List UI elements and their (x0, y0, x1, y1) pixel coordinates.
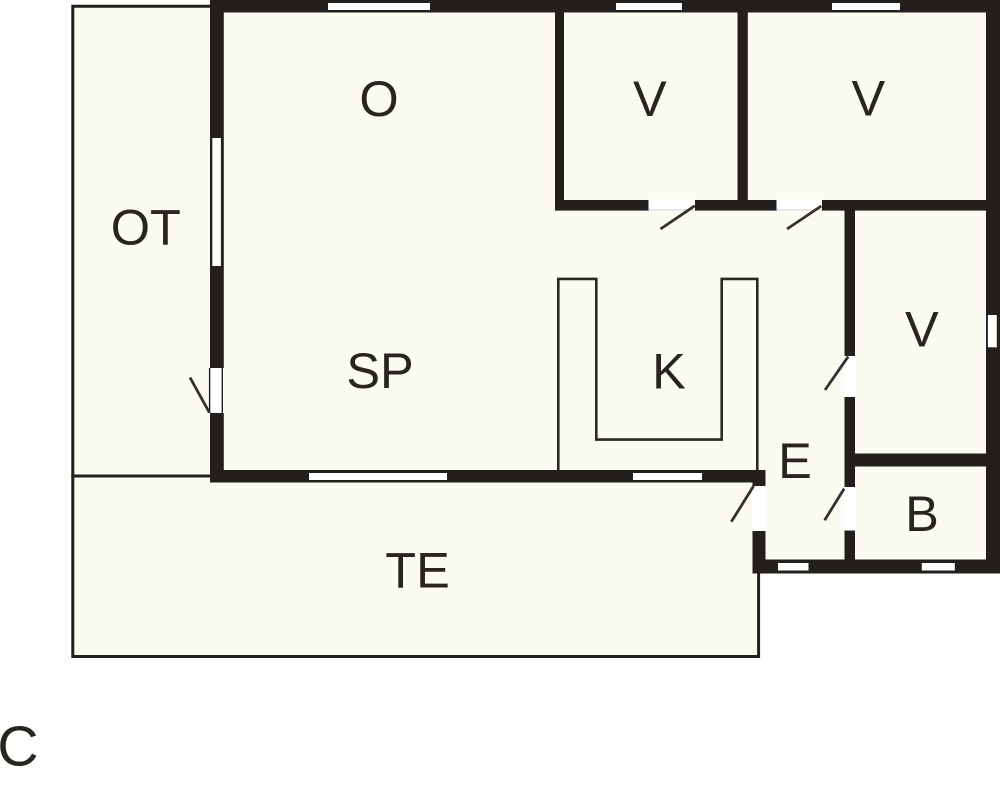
svg-text:C: C (0, 715, 39, 779)
svg-text:V: V (905, 301, 939, 358)
svg-text:OT: OT (111, 199, 181, 256)
svg-text:B: B (905, 485, 939, 542)
svg-text:TE: TE (385, 542, 450, 599)
svg-text:V: V (852, 70, 886, 127)
svg-text:K: K (652, 343, 686, 400)
svg-text:E: E (778, 432, 812, 489)
svg-text:O: O (359, 70, 398, 127)
svg-text:SP: SP (346, 342, 413, 399)
svg-text:V: V (633, 70, 667, 127)
